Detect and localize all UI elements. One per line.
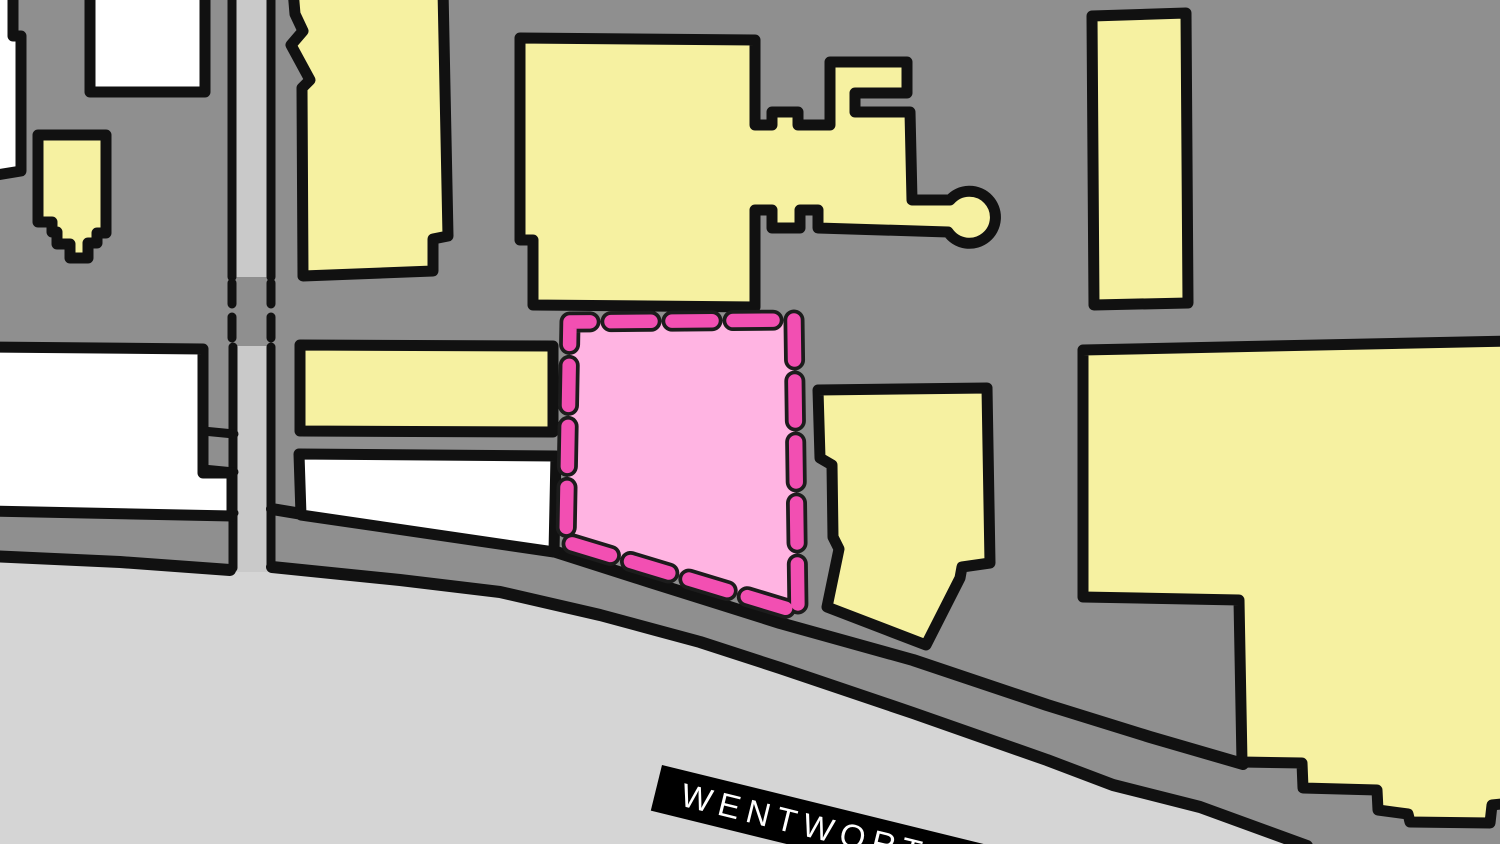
building-yellow-strip <box>300 345 553 432</box>
alley-lower <box>233 346 271 572</box>
alley-upper <box>232 0 271 277</box>
building-white-left-sliver <box>0 0 21 176</box>
building-white-mid-left <box>0 347 232 516</box>
building-yellow-top-right-tall <box>1092 13 1188 305</box>
map-canvas: WENTWORTH <box>0 0 1500 844</box>
parcel-map: WENTWORTH <box>0 0 1500 844</box>
building-white-top <box>90 0 205 92</box>
building-yellow-left-tall <box>291 0 448 276</box>
